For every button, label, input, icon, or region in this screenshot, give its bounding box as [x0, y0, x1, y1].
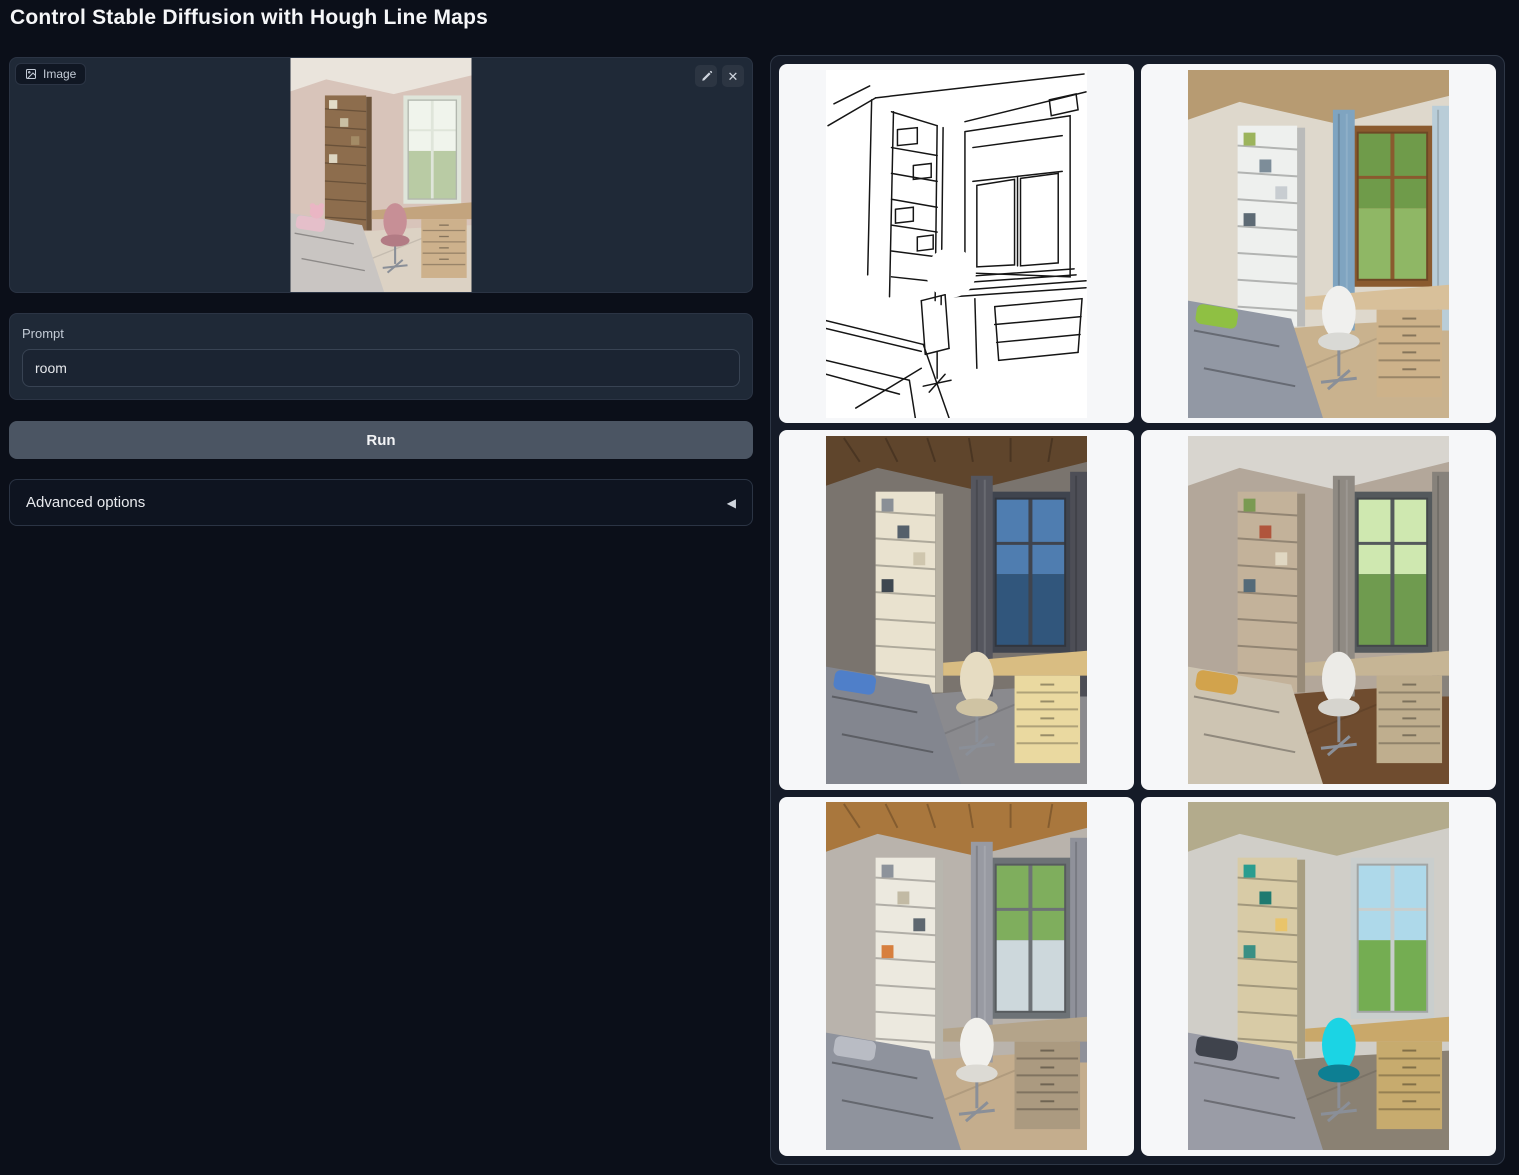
- image-label-chip: Image: [15, 63, 86, 85]
- image-label: Image: [43, 67, 76, 81]
- uploaded-image[interactable]: [291, 58, 472, 292]
- prompt-input[interactable]: [22, 349, 740, 387]
- generated-image-1: [1188, 70, 1449, 418]
- generated-image-4: [826, 802, 1087, 1150]
- gallery-item-4[interactable]: [1141, 430, 1496, 789]
- gallery-item-3[interactable]: [779, 430, 1134, 789]
- prompt-label: Prompt: [22, 326, 740, 341]
- generated-image-2: [826, 436, 1087, 784]
- output-gallery: [770, 55, 1505, 1165]
- gallery-item-2[interactable]: [1141, 64, 1496, 423]
- page-title: Control Stable Diffusion with Hough Line…: [10, 6, 488, 30]
- prompt-block: Prompt: [9, 313, 753, 400]
- hough-line-map-image: [826, 70, 1087, 418]
- advanced-options-label: Advanced options: [26, 494, 145, 511]
- gallery-item-5[interactable]: [779, 797, 1134, 1156]
- advanced-options-accordion[interactable]: Advanced options ◀: [9, 479, 753, 526]
- run-button[interactable]: Run: [9, 421, 753, 459]
- generated-image-5: [1188, 802, 1449, 1150]
- left-column: Image ✕ Prompt Run Advanced options ◀: [9, 57, 753, 526]
- pencil-icon: [700, 70, 713, 83]
- clear-image-button[interactable]: ✕: [722, 65, 744, 87]
- gallery-item-1[interactable]: [779, 64, 1134, 423]
- generated-image-3: [1188, 436, 1449, 784]
- image-icon: [25, 68, 37, 80]
- image-actions: ✕: [695, 65, 744, 87]
- edit-image-button[interactable]: [695, 65, 717, 87]
- triangle-left-icon: ◀: [727, 496, 736, 510]
- gallery-item-6[interactable]: [1141, 797, 1496, 1156]
- x-icon: ✕: [728, 70, 739, 83]
- input-image-component[interactable]: Image ✕: [9, 57, 753, 293]
